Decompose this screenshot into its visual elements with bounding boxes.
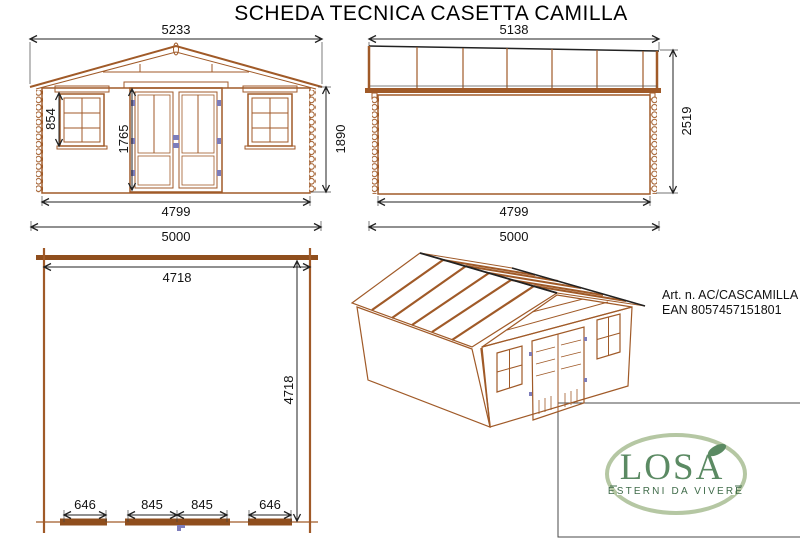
iso-window-left: [497, 346, 522, 392]
iso-roof-left-slope: [352, 253, 557, 347]
iso-view: [352, 253, 645, 427]
plan-window-right: [248, 519, 292, 526]
dim-plan-door-leaf-left: 845: [128, 497, 177, 522]
front-door: [124, 82, 228, 192]
dim-plan-inner-width: 4718: [44, 267, 310, 285]
logo-tagline: ESTERNI DA VIVERE: [608, 486, 744, 497]
door-handle: [173, 135, 179, 140]
iso-gable: [482, 295, 632, 347]
svg-text:4799: 4799: [500, 204, 529, 219]
side-roof: [365, 46, 661, 99]
technical-drawing: SCHEDA TECNICA CASETTA CAMILLA LOSA ESTE…: [0, 0, 800, 556]
dim-wall-height: 1890: [311, 87, 348, 192]
roof-finial: [174, 43, 179, 55]
svg-text:1890: 1890: [333, 125, 348, 154]
door-slats-left: [138, 156, 170, 185]
log-ends-left: [372, 96, 379, 194]
dim-window-height: 854: [43, 93, 59, 146]
iso-side-wall: [357, 307, 490, 427]
dim-front-base-width: 5000: [31, 221, 321, 244]
log-ends-right: [650, 96, 657, 194]
page-title: SCHEDA TECNICA CASETTA CAMILLA: [234, 2, 628, 25]
dim-side-inner-width: 4799: [378, 196, 650, 219]
dim-plan-window-right: 646: [249, 497, 291, 522]
iso-ridge: [420, 253, 557, 293]
product-codes: Art. n. AC/CASCAMILLA EAN 8057457151801: [662, 288, 799, 317]
svg-text:4799: 4799: [162, 204, 191, 219]
svg-text:2519: 2519: [679, 107, 694, 136]
floor-plan: 4718 4718 646 845 845 646: [36, 248, 318, 533]
svg-text:854: 854: [43, 108, 58, 130]
plan-door: [125, 519, 230, 526]
front-window-right: [243, 86, 297, 149]
side-wall: [378, 95, 650, 194]
side-elevation: 5138 2519: [365, 22, 694, 244]
logo-box: LOSA ESTERNI DA VIVERE: [558, 403, 800, 537]
svg-text:845: 845: [191, 497, 213, 512]
iso-door: [529, 327, 587, 420]
iso-front-wall: [482, 307, 632, 427]
svg-text:646: 646: [259, 497, 281, 512]
dim-front-inner-width: 4799: [42, 196, 310, 219]
front-elevation: 5233: [30, 22, 348, 244]
svg-text:1765: 1765: [116, 125, 131, 154]
svg-text:4718: 4718: [163, 270, 192, 285]
svg-text:5000: 5000: [162, 229, 191, 244]
dim-side-total-height: 2519: [656, 50, 694, 193]
dim-plan-window-left: 646: [64, 497, 106, 522]
svg-text:845: 845: [141, 497, 163, 512]
dim-plan-inner-depth: 4718: [281, 261, 297, 521]
plan-door-hinge: [177, 525, 185, 528]
log-ends-right: [309, 90, 316, 193]
article-number: Art. n. AC/CASCAMILLA: [662, 288, 799, 302]
svg-text:5138: 5138: [500, 22, 529, 37]
iso-corner: [481, 348, 490, 426]
log-ends-left: [36, 90, 43, 193]
plan-back-wall: [36, 255, 318, 260]
datasheet-page: SCHEDA TECNICA CASETTA CAMILLA LOSA ESTE…: [0, 0, 800, 556]
dim-side-base-width: 5000: [369, 221, 659, 244]
ean-code: EAN 8057457151801: [662, 303, 782, 317]
door-slats-right: [182, 156, 214, 185]
dim-side-total-width: 5138: [369, 22, 659, 50]
plan-window-left: [60, 519, 107, 526]
svg-text:646: 646: [74, 497, 96, 512]
fascia-board: [365, 88, 661, 93]
svg-text:5233: 5233: [162, 22, 191, 37]
iso-window-right: [597, 314, 620, 359]
front-window-left: [55, 86, 109, 149]
svg-text:4718: 4718: [281, 376, 296, 405]
svg-text:5000: 5000: [500, 229, 529, 244]
dim-plan-door-leaf-right: 845: [177, 497, 227, 522]
